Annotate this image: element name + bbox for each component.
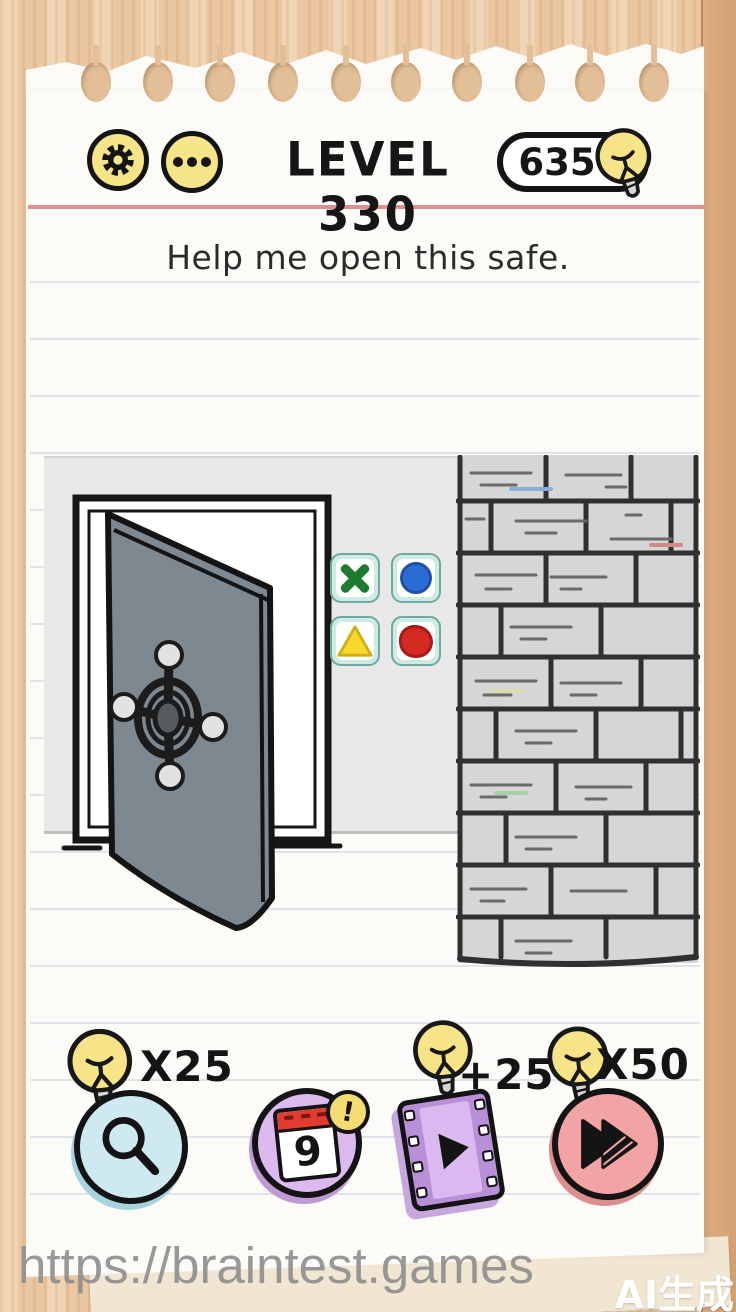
play-icon [438, 1129, 471, 1169]
punch-hole [205, 62, 235, 102]
ai-generated-tag: AI生成 [614, 1264, 734, 1312]
brick-wall [456, 455, 700, 969]
punch-hole [143, 62, 173, 102]
safe [40, 450, 460, 985]
fast-forward-icon [571, 1110, 645, 1178]
skip-level-button[interactable] [552, 1088, 664, 1200]
code-button-blue-circle[interactable] [391, 553, 441, 603]
watermark-url: https://braintest.games [18, 1236, 534, 1295]
watch-video-button[interactable] [396, 1087, 506, 1212]
code-button-green-cross[interactable] [330, 553, 380, 603]
level-question: Help me open this safe. [0, 238, 736, 277]
yellow-triangle-icon [336, 623, 374, 659]
film-strip-icon [419, 1101, 483, 1200]
punch-hole [81, 62, 111, 102]
blue-circle-icon [400, 562, 432, 594]
hint-cost-label: X25 [140, 1042, 234, 1091]
punch-hole [452, 62, 482, 102]
hint-button[interactable] [74, 1090, 188, 1204]
skip-cost-label: X50 [596, 1040, 690, 1089]
punch-hole [391, 62, 421, 102]
red-circle-icon [399, 625, 433, 658]
punch-hole [268, 62, 298, 102]
punch-hole [515, 62, 545, 102]
magnifier-icon [94, 1110, 168, 1184]
punch-hole [575, 62, 605, 102]
calendar-day: 9 [279, 1125, 338, 1178]
ellipsis-icon [173, 157, 183, 167]
game-screen: LEVEL 330 635 Help me open this safe. [0, 0, 736, 1312]
code-button-red-circle[interactable] [391, 616, 441, 666]
gear-icon [95, 137, 141, 183]
settings-button[interactable] [87, 129, 149, 191]
bulb-count-value: 635 [509, 141, 605, 184]
code-button-yellow-triangle[interactable] [330, 616, 380, 666]
level-title: LEVEL 330 [238, 132, 498, 242]
green-cross-icon [337, 560, 373, 596]
punch-hole [331, 62, 361, 102]
more-options-button[interactable] [161, 131, 223, 193]
punch-hole [639, 62, 669, 102]
wood-plank [701, 0, 736, 1312]
bulb-counter[interactable]: 635 [497, 132, 649, 192]
